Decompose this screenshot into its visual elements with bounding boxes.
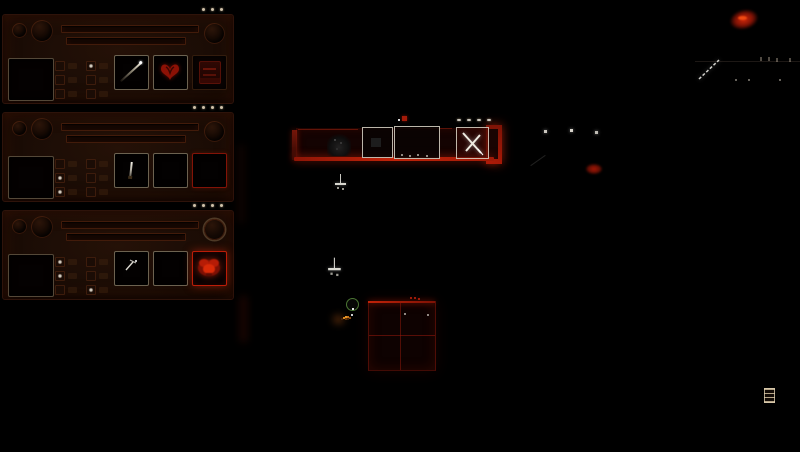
stat-icon: [55, 257, 65, 267]
pip-dot: [193, 204, 196, 207]
stat-cell: [55, 59, 82, 73]
item-slot[interactable]: [153, 153, 188, 188]
stat-cell: [55, 87, 82, 101]
miner-sprite[interactable]: [345, 316, 347, 318]
stat-cell: [86, 269, 113, 283]
item-slot[interactable]: [114, 251, 149, 286]
platform-top-edge: [298, 129, 358, 130]
item-slot[interactable]: [192, 251, 227, 286]
rope-arrow: [696, 56, 724, 84]
ceiling-glow-core: [738, 16, 747, 20]
stat-grid: [55, 157, 113, 199]
gauge-knob-icon[interactable]: [31, 118, 53, 140]
stat-icon: [86, 159, 96, 169]
gauge-knob-icon[interactable]: [12, 23, 27, 38]
pip-dot: [457, 119, 461, 121]
stat-cell: [55, 255, 82, 269]
pip-dot: [202, 8, 205, 11]
crate-crossed[interactable]: [456, 127, 489, 159]
pip-dot: [487, 119, 491, 121]
stat-cell: [86, 185, 113, 199]
stat-icon: [55, 61, 65, 71]
spear-icon: [120, 62, 142, 82]
pip-dot: [211, 204, 214, 207]
rock-scratch: [530, 155, 545, 166]
stat-icon: [55, 89, 65, 99]
stat-icon: [55, 271, 65, 281]
stat-cell: [55, 157, 82, 171]
pip-dot: [211, 106, 214, 109]
stat-icon: [86, 285, 96, 295]
charge-pips: [193, 204, 223, 207]
stat-grid: [55, 59, 113, 101]
pip-dot: [220, 8, 223, 11]
stat-icon: [55, 285, 65, 295]
stat-grid: [55, 255, 113, 297]
flag-marker: [398, 116, 408, 127]
item-slot[interactable]: [192, 55, 227, 90]
crate-shadow: [371, 138, 381, 147]
vignette-smudge: [238, 145, 244, 223]
frame-structure[interactable]: [368, 301, 436, 371]
item-slot[interactable]: [114, 153, 149, 188]
stat-icon: [86, 61, 96, 71]
crate-durability-pips: [457, 119, 790, 121]
knife-icon: [129, 162, 133, 177]
pip-dot: [220, 106, 223, 109]
crossed-tools-icon: [457, 128, 488, 158]
gauge-knob-icon[interactable]: [204, 23, 225, 44]
stat-cell: [55, 185, 82, 199]
frame-floor-line: [369, 335, 435, 336]
stat-icon: [55, 187, 65, 197]
stat-cell: [55, 73, 82, 87]
item-slot[interactable]: [114, 55, 149, 90]
stat-cell: [86, 87, 113, 101]
pip-dot: [193, 106, 196, 109]
hanging-sprite[interactable]: [334, 174, 348, 192]
stat-icon: [55, 173, 65, 183]
crate-plain[interactable]: [362, 127, 393, 158]
map-corner-mark: [13, 6, 19, 11]
ladder-item[interactable]: [764, 388, 775, 403]
hanging-sprite[interactable]: [327, 258, 343, 279]
pip-dot: [211, 8, 214, 11]
stat-cell: [86, 157, 113, 171]
stat-cell: [86, 283, 113, 297]
pip-dot: [202, 106, 205, 109]
unit-panel-1[interactable]: [2, 14, 234, 104]
platform-left-glow: [292, 130, 297, 160]
item-slot[interactable]: [153, 55, 188, 90]
stat-cell: [86, 255, 113, 269]
crab-emblem-icon: [196, 256, 223, 279]
stat-cell: [55, 269, 82, 283]
stat-cell: [86, 73, 113, 87]
stamina-bar: [66, 37, 186, 45]
stat-icon: [86, 271, 96, 281]
unit-panel-2[interactable]: [2, 112, 234, 202]
charge-pips: [202, 8, 223, 11]
pip-dot: [477, 119, 481, 121]
gauge-knob-icon[interactable]: [204, 219, 225, 240]
stat-cell: [55, 283, 82, 297]
stamina-bar: [66, 233, 186, 241]
lantern-dots: [544, 128, 604, 136]
wing-emblem-icon: [158, 62, 182, 82]
stat-cell: [86, 171, 113, 185]
stat-icon: [86, 173, 96, 183]
unit-portrait[interactable]: [8, 156, 54, 199]
pip-dot: [202, 204, 205, 207]
vignette-smudge: [240, 296, 247, 342]
miner-group[interactable]: [338, 296, 368, 328]
supply-platform[interactable]: [292, 124, 502, 166]
frame-wall-line: [400, 301, 401, 370]
gauge-knob-icon[interactable]: [12, 121, 27, 136]
health-bar: [61, 221, 199, 229]
charge-pips: [193, 106, 223, 109]
stat-icon: [86, 187, 96, 197]
unit-panel-3[interactable]: [2, 210, 234, 300]
gauge-knob-icon[interactable]: [204, 121, 225, 142]
gauge-knob-icon[interactable]: [31, 216, 53, 238]
pick-icon: [124, 258, 140, 272]
pip-dot: [467, 119, 471, 121]
pip-dot: [220, 204, 223, 207]
stamina-bar: [66, 135, 186, 143]
stat-icon: [55, 75, 65, 85]
furnace-icon: [199, 61, 221, 84]
stat-icon: [55, 159, 65, 169]
shadow-figure[interactable]: [327, 134, 351, 156]
health-bar: [61, 25, 199, 33]
health-bar: [61, 123, 199, 131]
item-slot[interactable]: [192, 153, 227, 188]
stat-icon: [86, 89, 96, 99]
torch-glow: [334, 316, 343, 323]
unit-portrait[interactable]: [8, 254, 54, 297]
stat-icon: [86, 257, 96, 267]
stat-cell: [86, 59, 113, 73]
crate-wide[interactable]: [394, 126, 440, 159]
unit-portrait[interactable]: [8, 58, 54, 101]
frame-top-beam: [368, 301, 435, 303]
stat-icon: [86, 75, 96, 85]
gauge-knob-icon[interactable]: [31, 20, 53, 42]
item-slot[interactable]: [153, 251, 188, 286]
gauge-knob-icon[interactable]: [12, 219, 27, 234]
stat-cell: [55, 171, 82, 185]
ember-glow: [586, 164, 602, 174]
